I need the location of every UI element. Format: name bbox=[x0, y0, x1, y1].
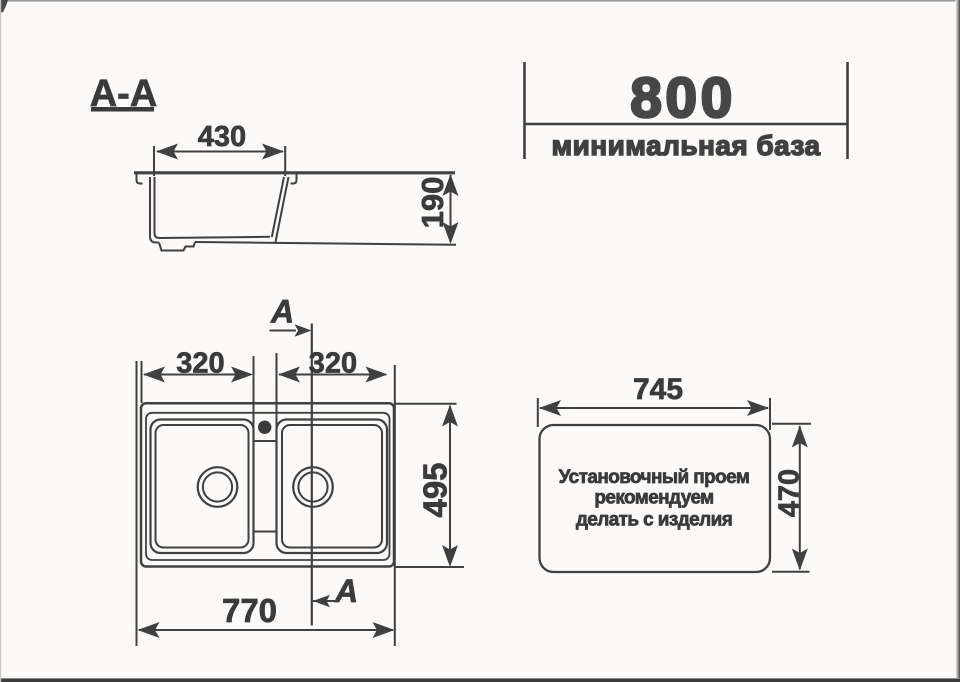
svg-text:делать с изделия: делать с изделия bbox=[576, 510, 732, 531]
svg-text:800: 800 bbox=[630, 66, 736, 130]
svg-text:495: 495 bbox=[417, 462, 454, 517]
svg-text:190: 190 bbox=[415, 177, 450, 229]
svg-text:770: 770 bbox=[222, 592, 277, 629]
svg-text:минимальная база: минимальная база bbox=[551, 130, 820, 161]
svg-text:470: 470 bbox=[774, 469, 806, 517]
svg-text:Установочный проем: Установочный проем bbox=[559, 467, 750, 488]
svg-text:745: 745 bbox=[633, 373, 683, 406]
svg-text:430: 430 bbox=[198, 121, 246, 153]
svg-text:A: A bbox=[334, 573, 358, 609]
svg-text:рекомендуем: рекомендуем bbox=[594, 488, 713, 509]
svg-text:A: A bbox=[270, 294, 294, 330]
